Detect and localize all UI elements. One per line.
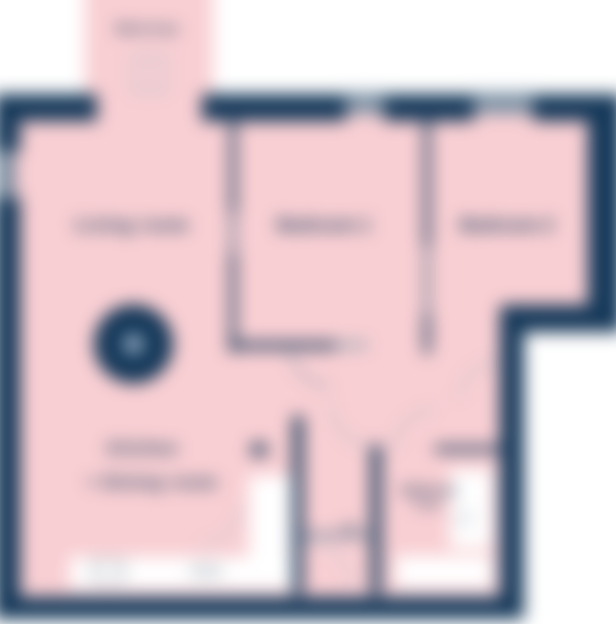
- svg-text:Bedroom 1: Bedroom 1: [277, 215, 371, 235]
- svg-text:Living room: Living room: [75, 215, 189, 235]
- svg-text:Bathroom: Bathroom: [402, 483, 459, 497]
- svg-text:Toilet: Toilet: [413, 499, 442, 511]
- svg-text:WC: WC: [343, 523, 359, 534]
- svg-text:Bedroom 2: Bedroom 2: [460, 215, 554, 235]
- svg-text:+ Dining room: + Dining room: [86, 472, 217, 492]
- svg-text:Kitchen: Kitchen: [107, 438, 178, 458]
- svg-text:Balcony: Balcony: [116, 21, 179, 36]
